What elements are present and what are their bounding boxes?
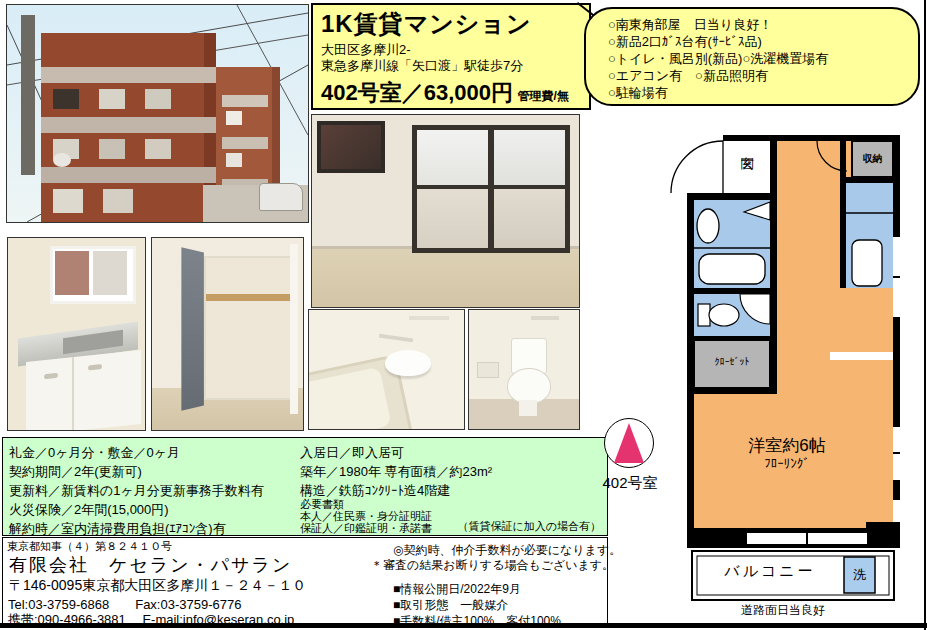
parked-van — [259, 183, 303, 211]
entry-door-arc — [671, 141, 723, 193]
wash-basin — [385, 350, 431, 376]
docs-note: （賃貸保証に加入の場合有） — [457, 519, 601, 534]
balcony-band — [41, 167, 216, 183]
compass-room-label: 402号室 — [595, 474, 665, 493]
window-pane — [494, 189, 565, 248]
window — [145, 89, 171, 109]
satellite-dish — [53, 153, 71, 167]
rental-flyer-page: 1K賃貸マンション 大田区多摩川2- 東急多摩川線「矢口渡」駅徒歩7分 402号… — [0, 0, 927, 630]
closet-shelf-pole — [206, 294, 294, 301]
photo-toilet — [468, 309, 580, 430]
window-pane — [55, 251, 89, 295]
company-name: 有限会社 ケセラン・パサラン — [9, 553, 292, 577]
photo-bathroom — [308, 309, 465, 430]
kitchen-window — [50, 246, 136, 304]
note-screening: ＊審査の結果お断りする場合もございます。 — [371, 557, 614, 574]
window-pane — [494, 130, 565, 185]
terms-line: 火災保険／2年間(15,000円) — [9, 500, 264, 519]
page-title: 1K賃貸マンション — [321, 8, 581, 40]
floor-plan: 玄関 収納 ｸﾛｰｾﾞｯﾄ 洋室約6帖 ﾌﾛｰﾘﾝｸﾞ バルコニー 洗 道路面日… — [660, 128, 905, 626]
photo-closet — [151, 237, 304, 431]
bathtub — [699, 254, 765, 284]
wood-floor — [312, 247, 579, 307]
compass: 402号室 — [595, 416, 665, 516]
window — [99, 89, 125, 109]
company-box: 東京都知事（４）第８２４１０号 有限会社 ケセラン・パサラン 〒146-0095… — [2, 537, 608, 626]
cabinet-handle — [88, 364, 102, 370]
kitchen-boundary-gap — [830, 352, 893, 360]
window — [226, 111, 242, 125]
compass-circle — [604, 418, 654, 468]
window — [103, 189, 133, 213]
kitchen-cabinets — [26, 350, 141, 431]
building-facade-front — [41, 33, 216, 222]
balcony-band — [222, 137, 268, 149]
small-window — [317, 121, 385, 173]
docs-line: 本人／住民票・身分証明証 — [300, 510, 432, 522]
property-address: 大田区多摩川2- — [321, 42, 581, 58]
closet-door — [181, 247, 204, 410]
paper-holder — [477, 362, 499, 378]
bathroom-sink — [697, 209, 719, 243]
feature-item: ○南東角部屋 日当り良好！ — [608, 16, 908, 33]
utility-pole — [21, 15, 35, 175]
photo-kitchen — [7, 237, 146, 431]
towel-bar — [409, 316, 449, 320]
window — [53, 89, 79, 109]
cabinet-handle — [44, 373, 58, 379]
terms-line: 礼金／0ヶ月分・敷金／0ヶ月 — [9, 443, 264, 462]
window-pane — [93, 251, 127, 295]
terms-box: 礼金／0ヶ月分・敷金／0ヶ月 契約期間／2年(更新可) 更新料／新賃料の1ヶ月分… — [2, 437, 608, 536]
page-bottom-border — [0, 623, 927, 628]
window — [99, 139, 125, 159]
toilet-base — [519, 400, 537, 416]
window-pane — [417, 189, 488, 248]
balcony-window — [412, 125, 570, 253]
storage-label: 収納 — [852, 152, 893, 166]
window — [53, 189, 83, 213]
closet-label: ｸﾛｰｾﾞｯﾄ — [694, 356, 770, 367]
toilet-bowl — [709, 304, 739, 326]
balcony-label: バルコニー — [705, 562, 835, 581]
balcony-band — [41, 67, 216, 83]
terms-line: 更新料／新賃料の1ヶ月分更新事務手数料有 — [9, 481, 264, 500]
washer-label: 洗 — [844, 566, 875, 584]
property-access: 東急多摩川線「矢口渡」駅徒歩7分 — [321, 58, 581, 74]
window-pane — [417, 130, 488, 185]
road-facing-note: 道路面日当良好 — [718, 602, 848, 619]
license-number: 東京都知事（４）第８２４１０号 — [7, 539, 172, 554]
feature-item: ○トイレ・風呂別(新品)○洗濯機置場有 — [608, 50, 908, 67]
room-size-label: 洋室約6帖 — [722, 434, 852, 457]
room-price: 402号室／63,000円 — [321, 80, 513, 105]
photo-main-room — [311, 114, 580, 308]
closet-interior — [204, 256, 296, 400]
faucet — [379, 334, 413, 343]
bathtub-inner — [308, 367, 392, 430]
terms-line: 入居日／即入居可 — [300, 443, 492, 462]
terms-line: 契約期間／2年(更新可) — [9, 462, 264, 481]
photo-building-exterior — [6, 4, 309, 223]
listing-meta: ■情報公開日/2022年9月 — [393, 581, 561, 597]
balcony-band — [41, 117, 216, 133]
floor-plan-drawing — [660, 128, 905, 626]
docs-heading: 必要書類 — [300, 498, 432, 510]
docs-line: 保証人／印鑑証明・承諾書 — [300, 522, 432, 534]
window-pane — [321, 125, 381, 169]
terms-line: 築年／1980年 専有面積／約23m² — [300, 462, 492, 481]
north-arrow — [614, 423, 644, 463]
title-box: 1K賃貸マンション 大田区多摩川2- 東急多摩川線「矢口渡」駅徒歩7分 402号… — [311, 3, 591, 110]
window — [226, 153, 242, 167]
window-gap — [893, 500, 900, 522]
company-address: 〒146-0095東京都大田区多摩川１－２４－１０ — [9, 577, 306, 595]
listing-meta: ■取引形態 一般媒介 — [393, 597, 561, 613]
cabinet-seam — [72, 357, 74, 431]
admin-fee: 管理費/無 — [517, 89, 568, 103]
genkan-label: 玄関 — [738, 146, 756, 192]
page-right-border — [924, 0, 926, 630]
towel-bar — [531, 316, 559, 320]
flooring-label: ﾌﾛｰﾘﾝｸﾞ — [722, 456, 852, 471]
balcony-band — [222, 95, 268, 107]
feature-item: ○エアコン有 ○新品照明有 — [608, 67, 908, 84]
kitchen-sink — [852, 240, 882, 286]
feature-item: ○新品2口ｶﾞｽ台有(ｻｰﾋﾞｽ品) — [608, 33, 908, 50]
terms-line: 解約時／室内清掃費用負担(ｴｱｺﾝ含)有 — [9, 519, 264, 538]
toilet-tank — [698, 304, 710, 326]
toilet-bowl — [507, 368, 551, 404]
door-frame — [290, 244, 298, 414]
feature-item: ○駐輪場有 — [608, 84, 908, 101]
window — [145, 139, 171, 159]
features-bubble: ○南東角部屋 日当り良好！ ○新品2口ｶﾞｽ台有(ｻｰﾋﾞｽ品) ○トイレ・風呂… — [584, 7, 920, 106]
